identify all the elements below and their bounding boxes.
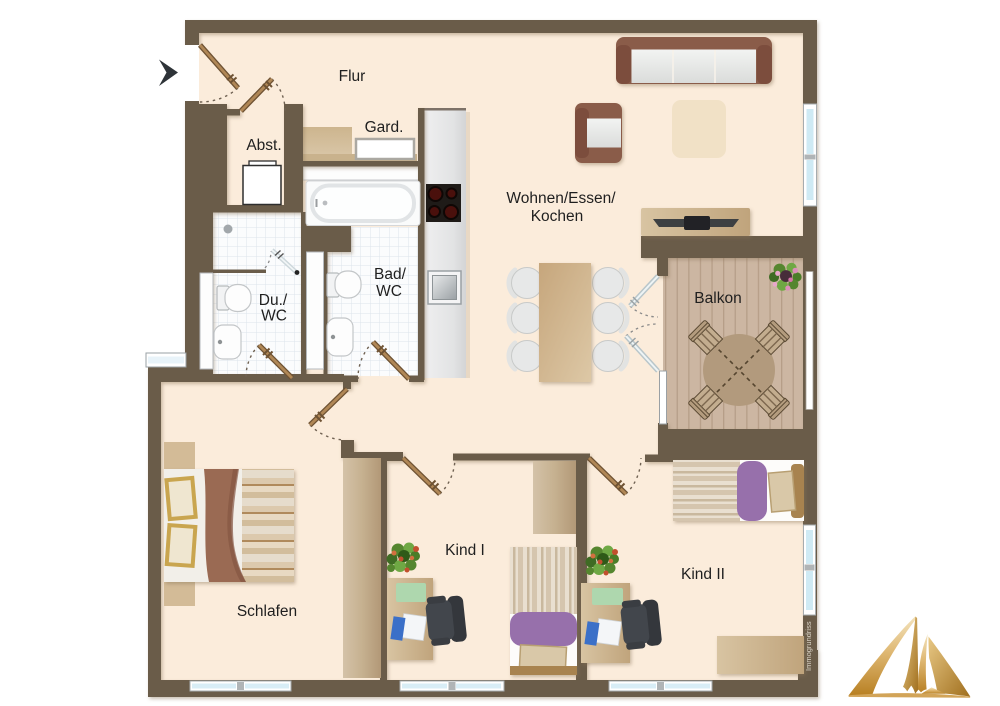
svg-text:Bad/: Bad/ [374,266,407,283]
svg-text:Balkon: Balkon [694,290,741,307]
svg-text:WC: WC [261,308,287,325]
svg-text:Du./: Du./ [259,292,288,309]
svg-text:Schlafen: Schlafen [237,603,297,620]
svg-text:Flur: Flur [339,68,366,85]
svg-text:Wohnen/Essen/: Wohnen/Essen/ [506,190,616,207]
svg-text:Kind I: Kind I [445,542,485,559]
svg-text:Gard.: Gard. [365,119,404,136]
svg-text:Abst.: Abst. [246,137,281,154]
svg-text:Kochen: Kochen [531,208,584,225]
svg-text:Kind II: Kind II [681,566,725,583]
svg-text:WC: WC [376,283,402,300]
svg-text:Immogrundriss: Immogrundriss [804,621,813,671]
